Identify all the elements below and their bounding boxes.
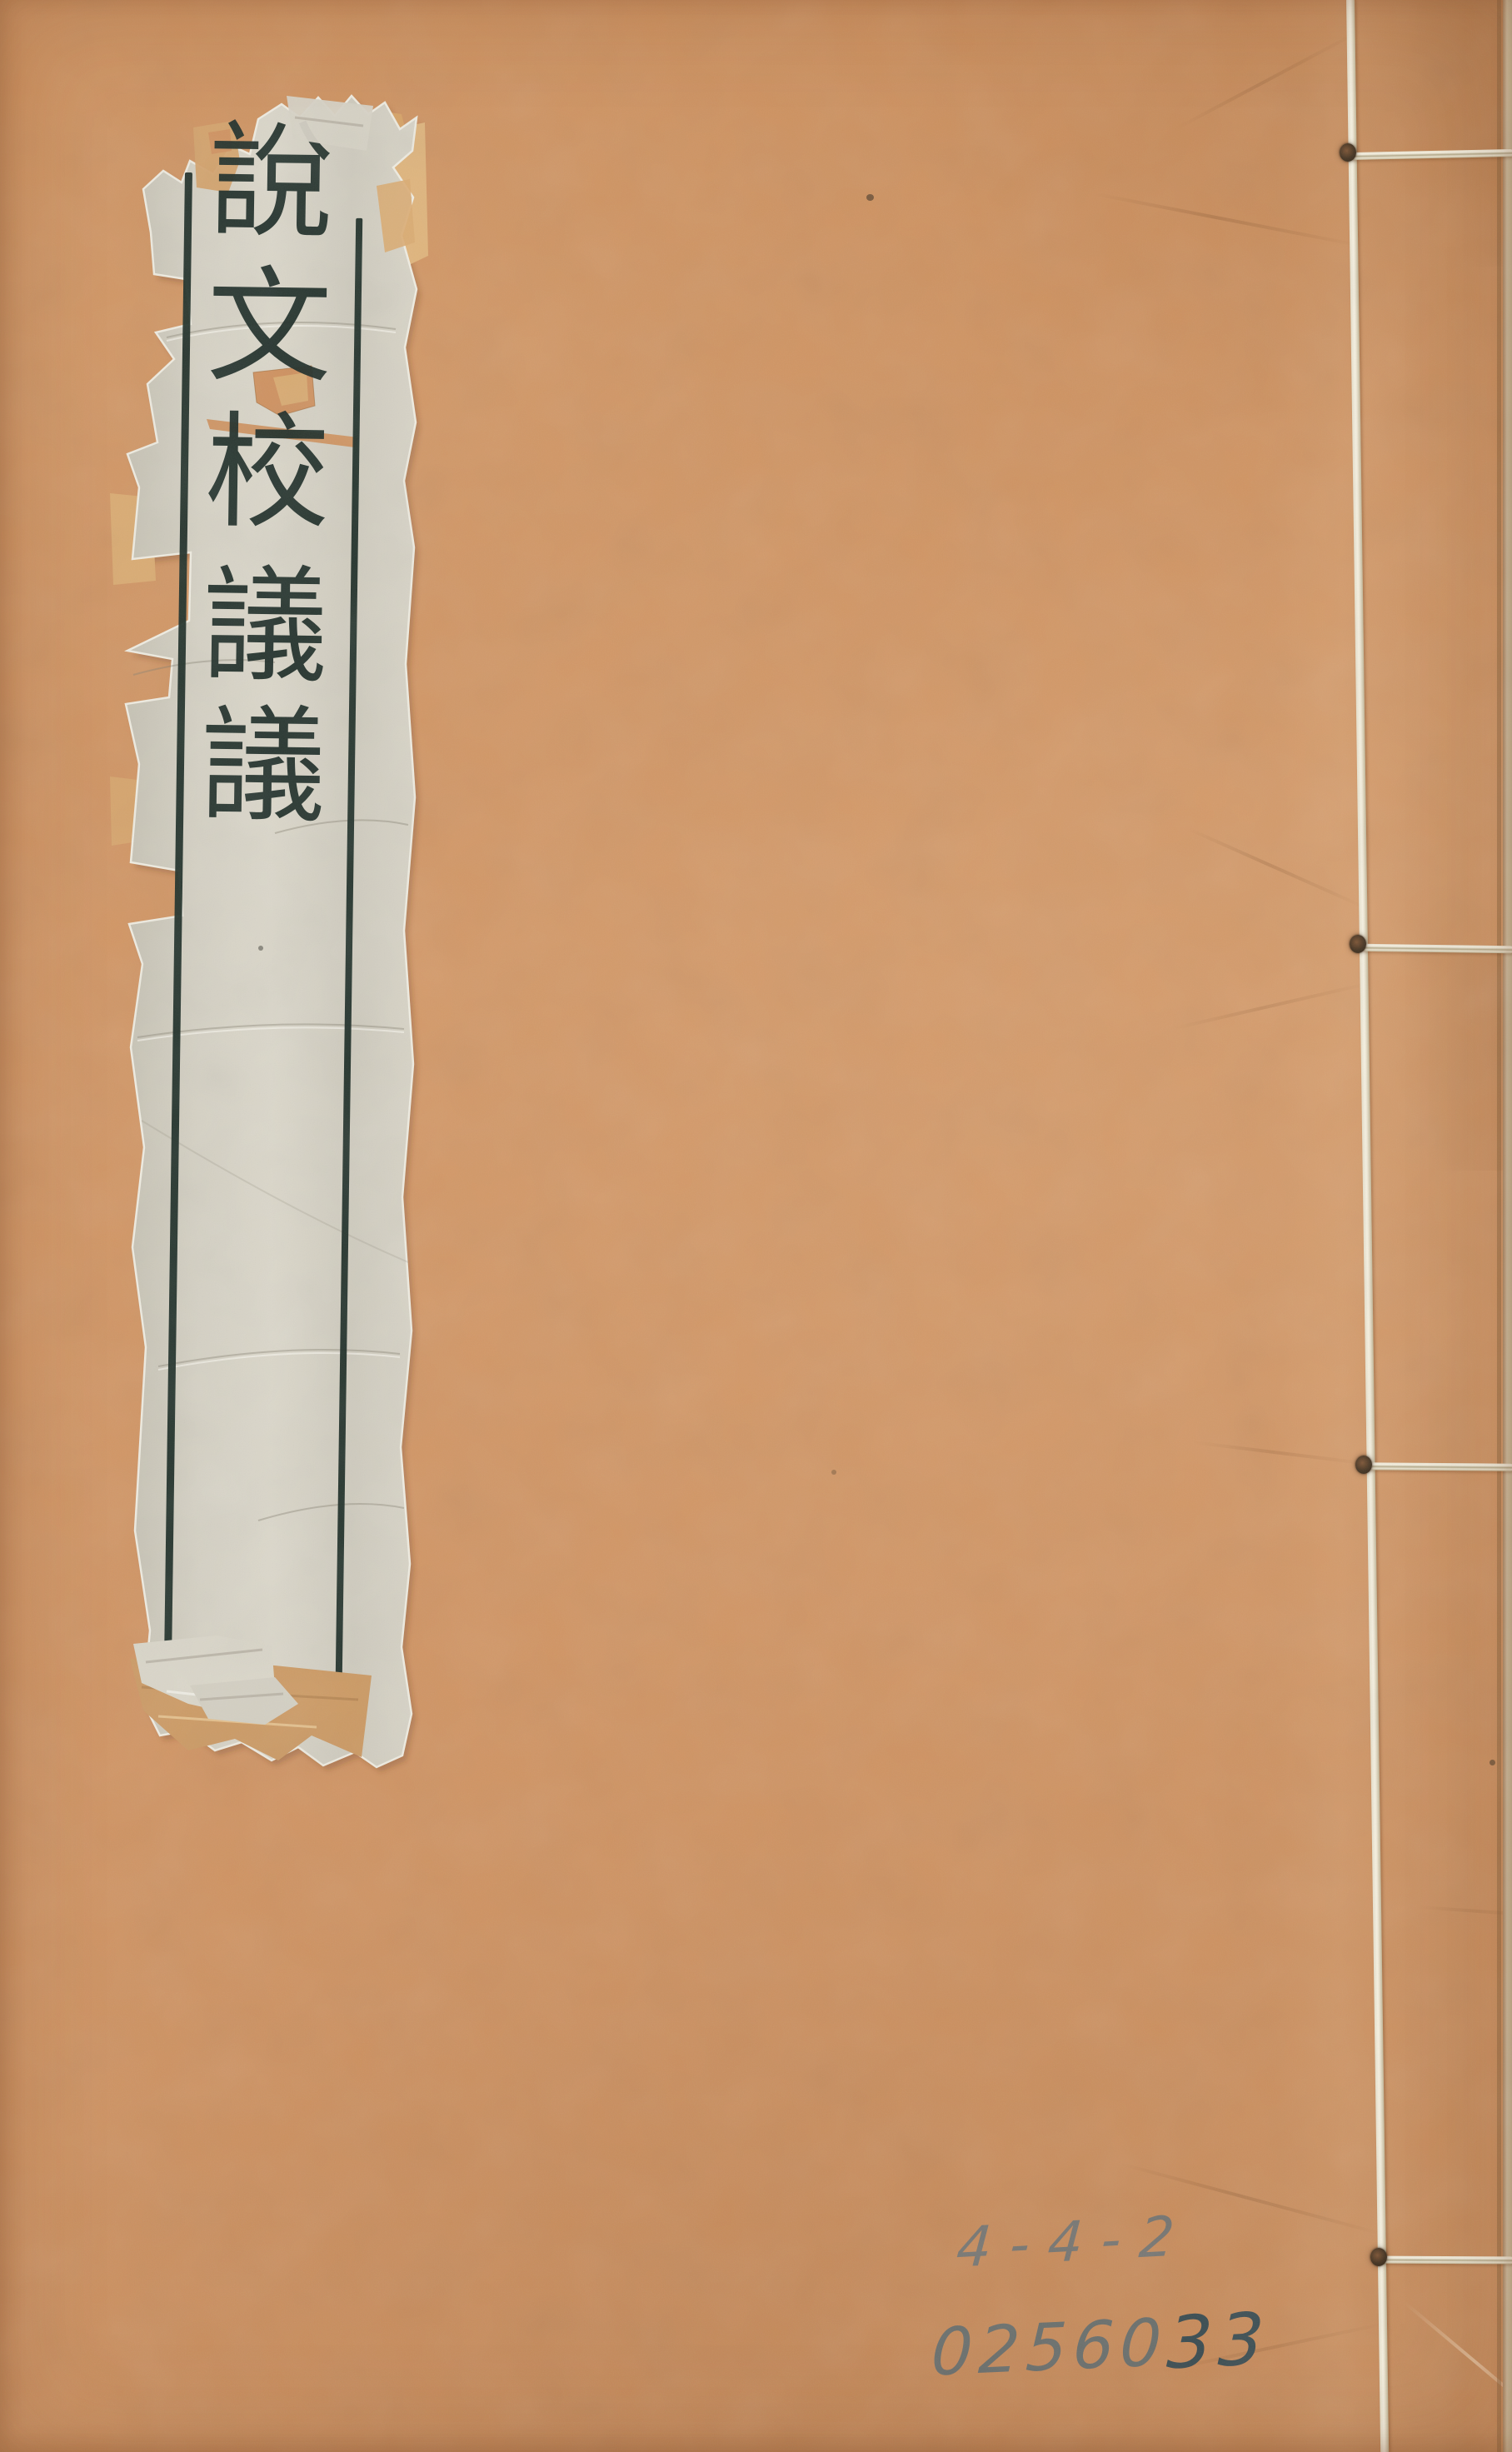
binding-thread-horizontal <box>1350 149 1512 160</box>
cover-edge-seam <box>1497 0 1501 2452</box>
crease-line <box>1094 192 1365 248</box>
stitch-hole <box>1340 143 1356 162</box>
title-character: 議 <box>202 553 328 700</box>
paper-speck <box>1490 1760 1495 1765</box>
title-character: 議 <box>200 693 327 840</box>
accession-number-light-digits: 02560 <box>930 2305 1169 2391</box>
crease-line <box>1186 826 1366 909</box>
binding-thread-horizontal <box>1362 944 1512 954</box>
title-label: 說 文 校 議 議 <box>108 79 433 1804</box>
ink-speck <box>258 946 263 951</box>
title-character: 文 <box>206 254 332 401</box>
binding-thread-horizontal <box>1367 1462 1512 1471</box>
title-character: 校 <box>204 400 331 547</box>
corner-crease-shading <box>1356 0 1512 267</box>
binding-thread-vertical <box>1346 0 1389 2452</box>
accession-number-dark-digits: 33 <box>1165 2298 1272 2386</box>
book-cover-photo: 說 文 校 議 議 4-4-2 0256033 <box>0 0 1512 2452</box>
spine-tone-band <box>1275 0 1500 2452</box>
title-label-art: 說 文 校 議 議 <box>108 79 433 1804</box>
paper-speck <box>831 1470 836 1475</box>
crease-highlight <box>1403 2301 1512 2421</box>
paper-speck <box>866 194 874 201</box>
shelf-mark-handwriting: 4-4-2 <box>955 2196 1325 2280</box>
binding-thread-horizontal <box>1383 2256 1512 2265</box>
stitch-hole <box>1355 1456 1372 1474</box>
stitch-hole <box>1370 2248 1387 2266</box>
crease-line <box>1173 981 1373 1030</box>
page-block-edge <box>1503 0 1512 2452</box>
crease-line <box>1174 31 1360 132</box>
stitch-crease-shading <box>1373 946 1512 1171</box>
crease-line <box>1192 1441 1370 1466</box>
stitch-hole <box>1350 935 1366 953</box>
accession-number-handwriting: 0256033 <box>930 2293 1291 2392</box>
